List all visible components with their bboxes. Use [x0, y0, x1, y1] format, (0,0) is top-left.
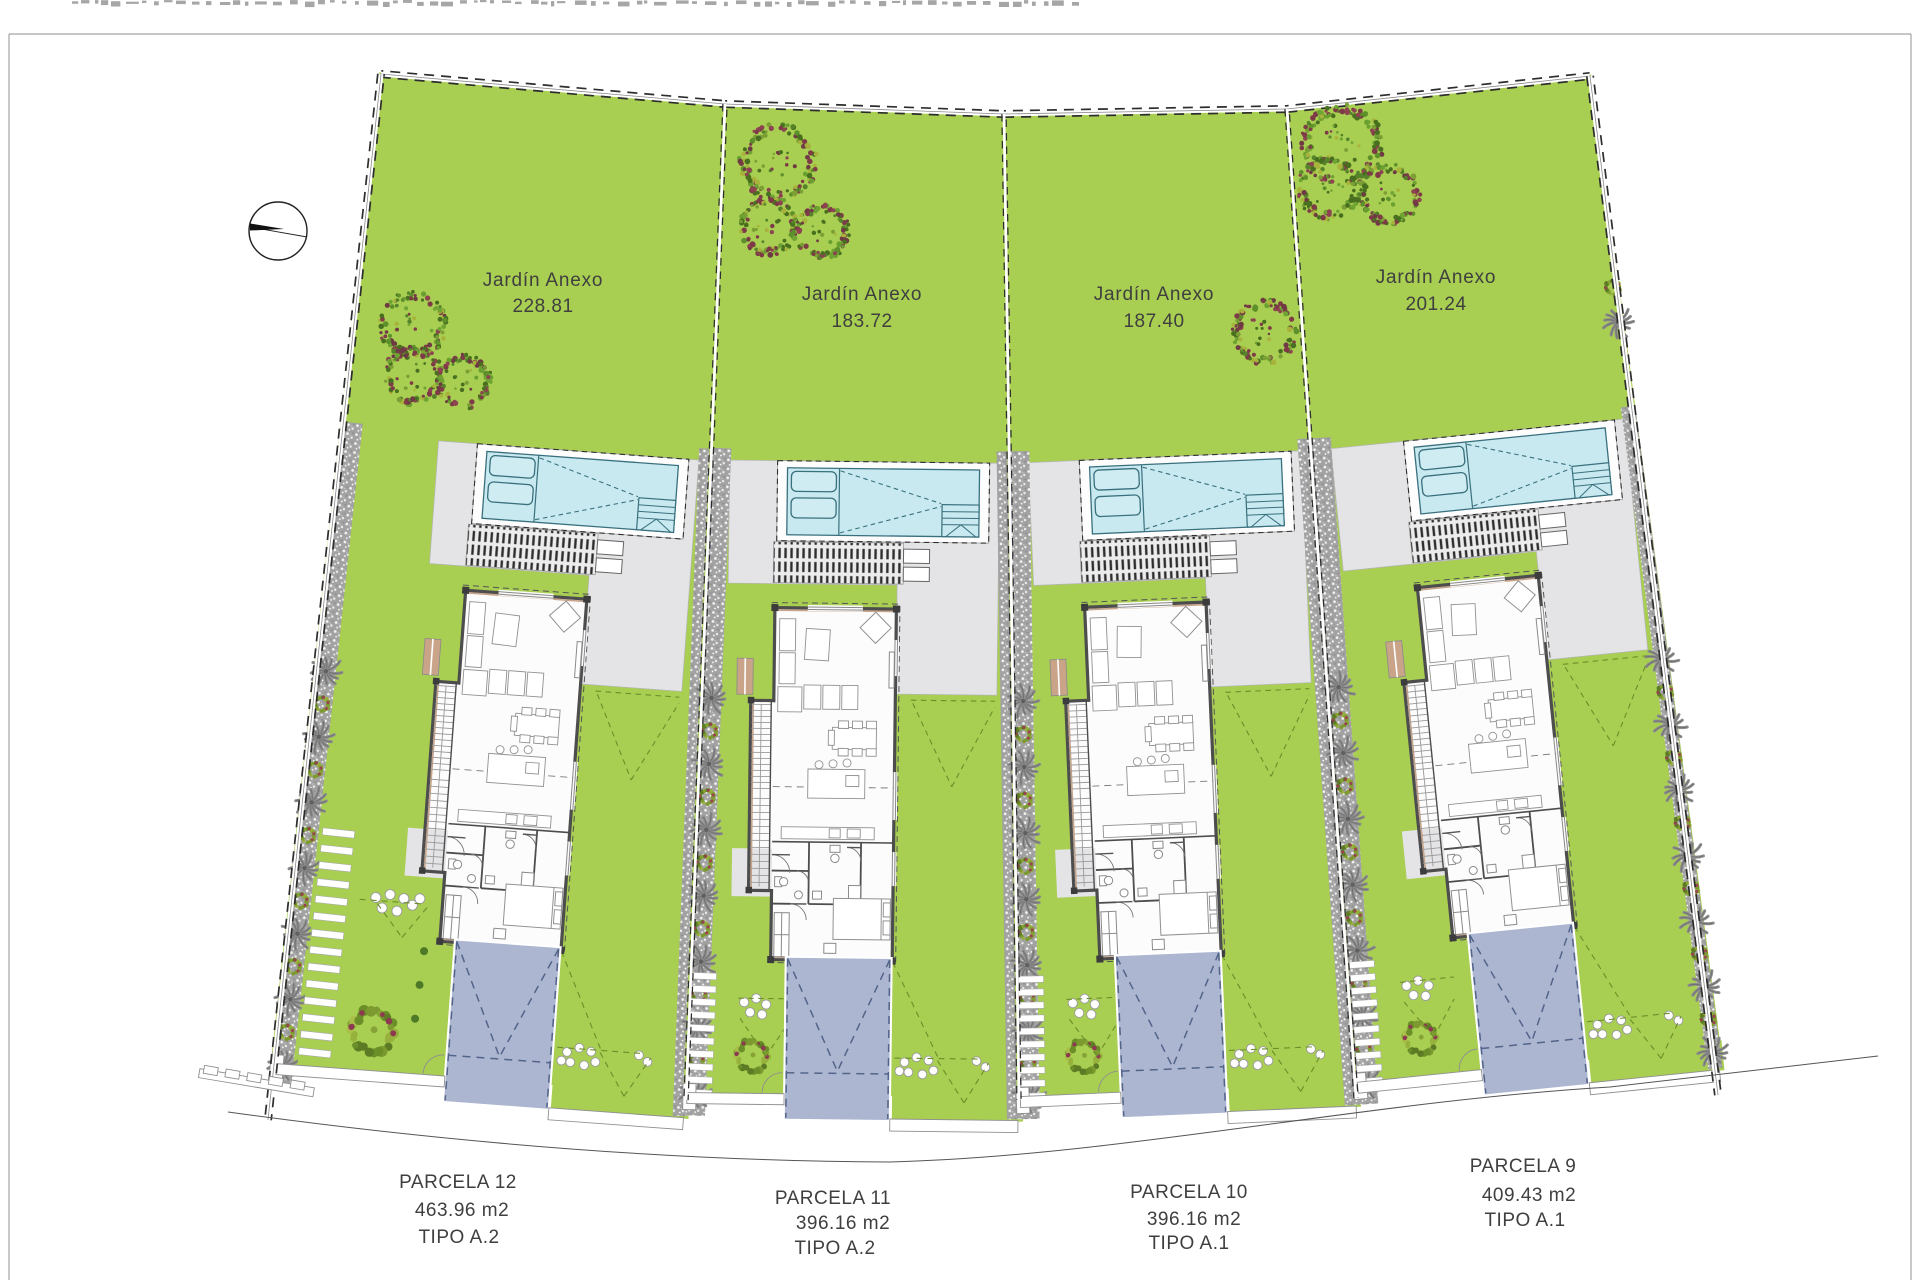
svg-text:Jardín Anexo: Jardín Anexo	[483, 270, 604, 291]
svg-text:183.72: 183.72	[831, 311, 892, 332]
svg-text:396.16 m2: 396.16 m2	[796, 1213, 890, 1234]
svg-text:TIPO A.2: TIPO A.2	[418, 1227, 499, 1248]
svg-text:396.16 m2: 396.16 m2	[1147, 1209, 1241, 1230]
svg-text:Jardín Anexo: Jardín Anexo	[802, 284, 923, 305]
svg-text:PARCELA 9: PARCELA 9	[1470, 1156, 1577, 1177]
svg-text:409.43 m2: 409.43 m2	[1482, 1185, 1576, 1206]
svg-text:PARCELA 10: PARCELA 10	[1130, 1182, 1248, 1203]
svg-text:187.40: 187.40	[1123, 311, 1184, 332]
svg-text:PARCELA 12: PARCELA 12	[399, 1172, 517, 1193]
svg-text:TIPO A.1: TIPO A.1	[1148, 1233, 1229, 1254]
svg-text:201.24: 201.24	[1405, 294, 1466, 315]
svg-text:228.81: 228.81	[512, 296, 573, 317]
svg-text:TIPO A.1: TIPO A.1	[1484, 1210, 1565, 1231]
svg-text:TIPO A.2: TIPO A.2	[794, 1238, 875, 1259]
svg-text:PARCELA 11: PARCELA 11	[775, 1188, 891, 1209]
svg-text:463.96 m2: 463.96 m2	[415, 1200, 509, 1221]
svg-text:Jardín Anexo: Jardín Anexo	[1094, 284, 1215, 305]
svg-text:Jardín Anexo: Jardín Anexo	[1376, 267, 1497, 288]
